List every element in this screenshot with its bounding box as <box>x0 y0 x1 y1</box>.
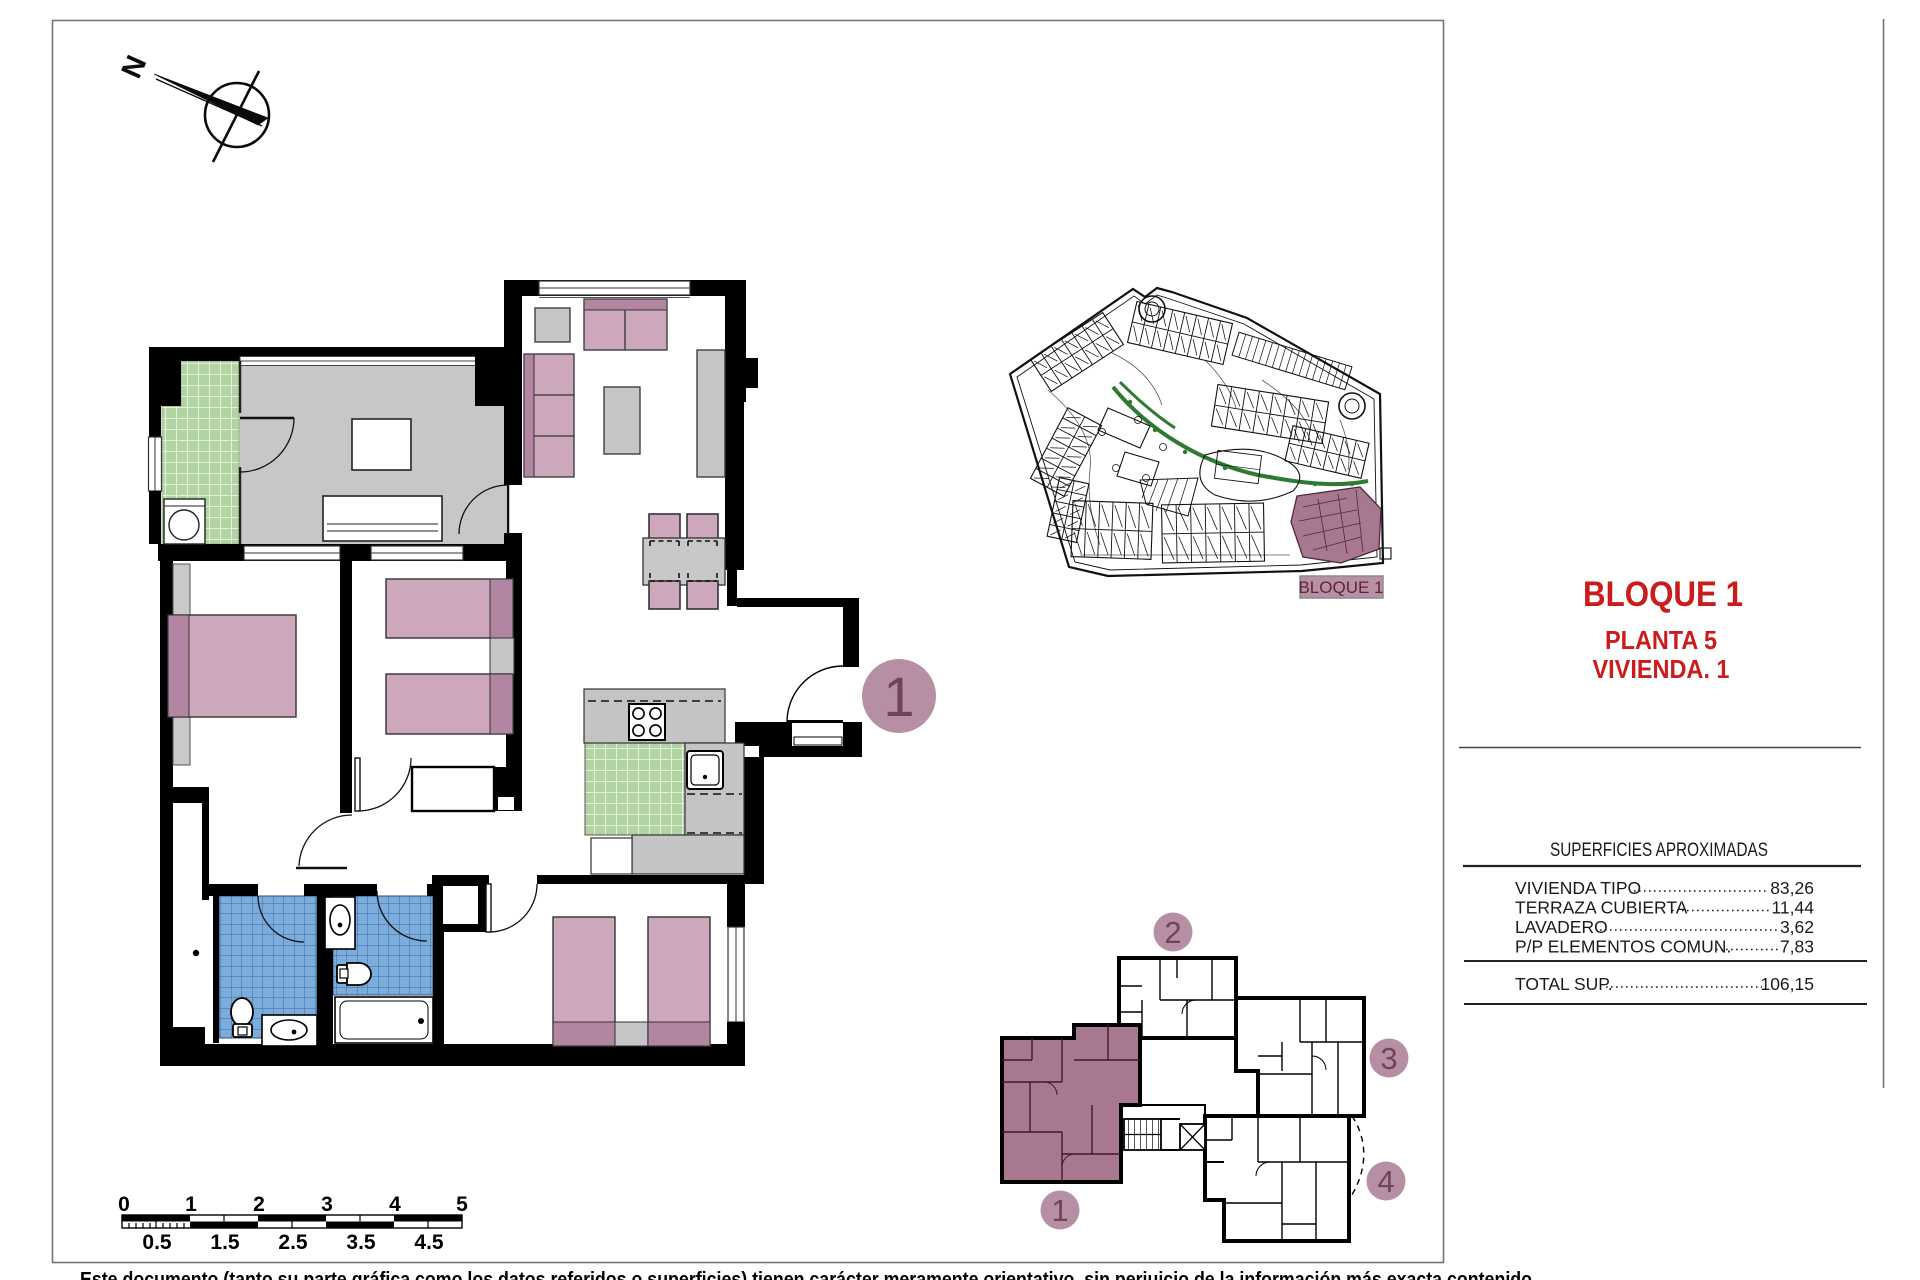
svg-text:4: 4 <box>389 1193 401 1216</box>
svg-text:SUPERFICIES APROXIMADAS: SUPERFICIES APROXIMADAS <box>1550 839 1768 861</box>
svg-text:2: 2 <box>253 1193 265 1216</box>
svg-text:1: 1 <box>1051 1193 1068 1228</box>
svg-text:VIVIENDA TIPO: VIVIENDA TIPO <box>1515 878 1641 898</box>
svg-text:83,26: 83,26 <box>1770 878 1814 898</box>
svg-text:1: 1 <box>185 1193 197 1216</box>
svg-text:LAVADERO: LAVADERO <box>1515 917 1608 937</box>
svg-text:1.5: 1.5 <box>210 1231 240 1254</box>
svg-text:P/P ELEMENTOS COMUN.: P/P ELEMENTOS COMUN. <box>1515 937 1731 957</box>
svg-text:0: 0 <box>118 1193 130 1216</box>
svg-text:BLOQUE 1: BLOQUE 1 <box>1583 575 1743 614</box>
svg-text:4.5: 4.5 <box>414 1231 444 1254</box>
svg-text:1: 1 <box>883 665 914 728</box>
svg-text:0.5: 0.5 <box>142 1231 172 1254</box>
svg-text:3.5: 3.5 <box>346 1231 376 1254</box>
svg-text:Este documento (tanto su parte: Este documento (tanto su parte gráfica c… <box>80 1268 1532 1280</box>
svg-text:TOTAL SUP.: TOTAL SUP. <box>1515 974 1613 994</box>
svg-text:TERRAZA CUBIERTA: TERRAZA CUBIERTA <box>1515 898 1688 918</box>
svg-text:VIVIENDA. 1: VIVIENDA. 1 <box>1593 654 1730 684</box>
svg-text:11,44: 11,44 <box>1772 898 1815 918</box>
svg-text:3,62: 3,62 <box>1780 917 1814 937</box>
svg-text:PLANTA 5: PLANTA 5 <box>1605 625 1717 655</box>
svg-text:3: 3 <box>321 1193 333 1216</box>
svg-text:106,15: 106,15 <box>1760 974 1814 994</box>
svg-text:BLOQUE 1: BLOQUE 1 <box>1298 578 1383 597</box>
svg-text:3: 3 <box>1380 1041 1397 1076</box>
svg-text:2.5: 2.5 <box>278 1231 308 1254</box>
svg-text:5: 5 <box>456 1193 468 1216</box>
svg-text:4: 4 <box>1377 1164 1394 1199</box>
svg-text:7,83: 7,83 <box>1780 937 1814 957</box>
svg-text:2: 2 <box>1164 915 1181 950</box>
